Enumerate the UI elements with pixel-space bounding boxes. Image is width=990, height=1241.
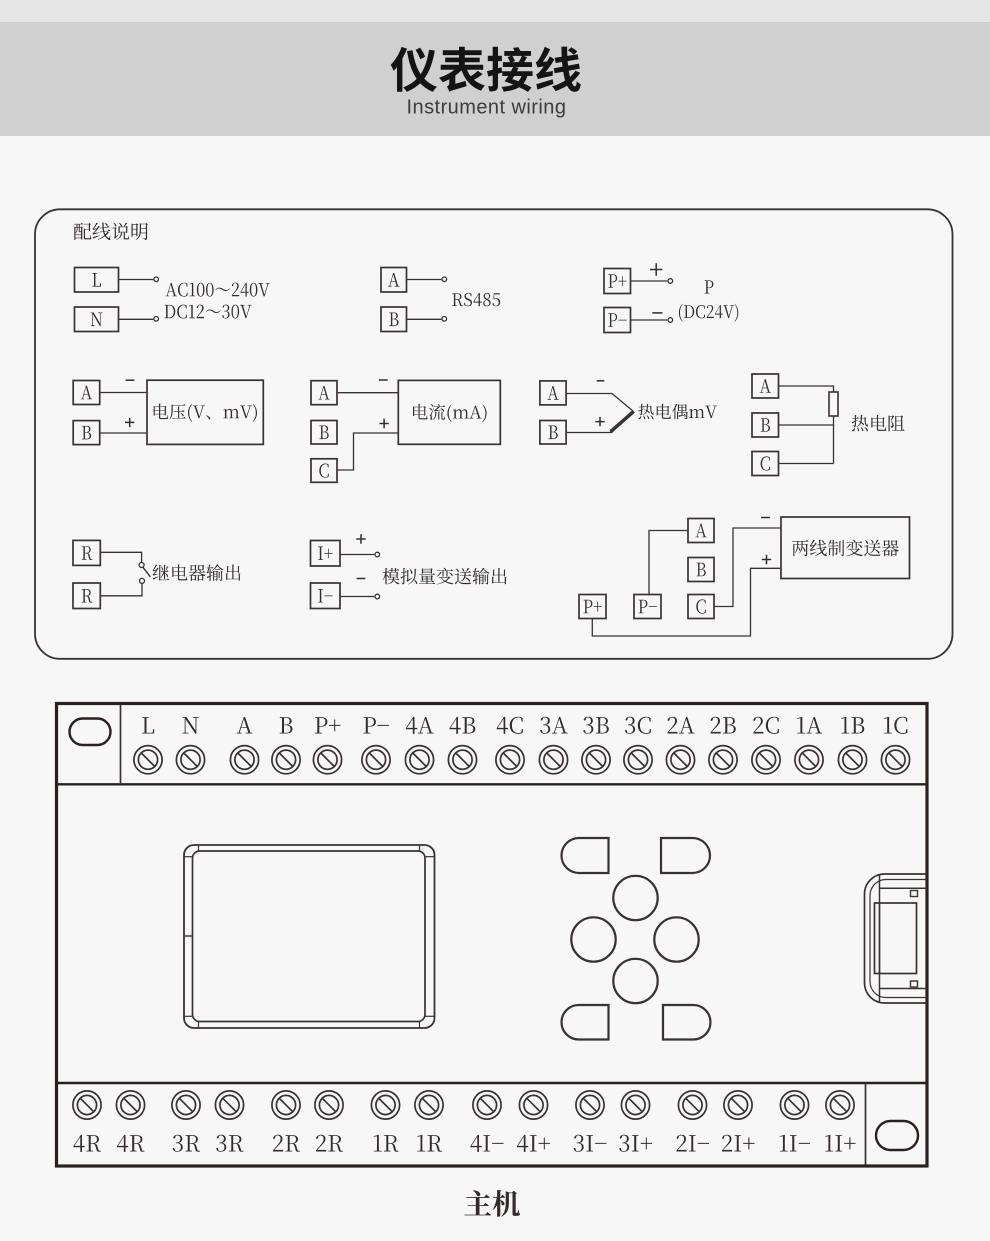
svg-text:Instrument wiring: Instrument wiring <box>407 97 567 119</box>
